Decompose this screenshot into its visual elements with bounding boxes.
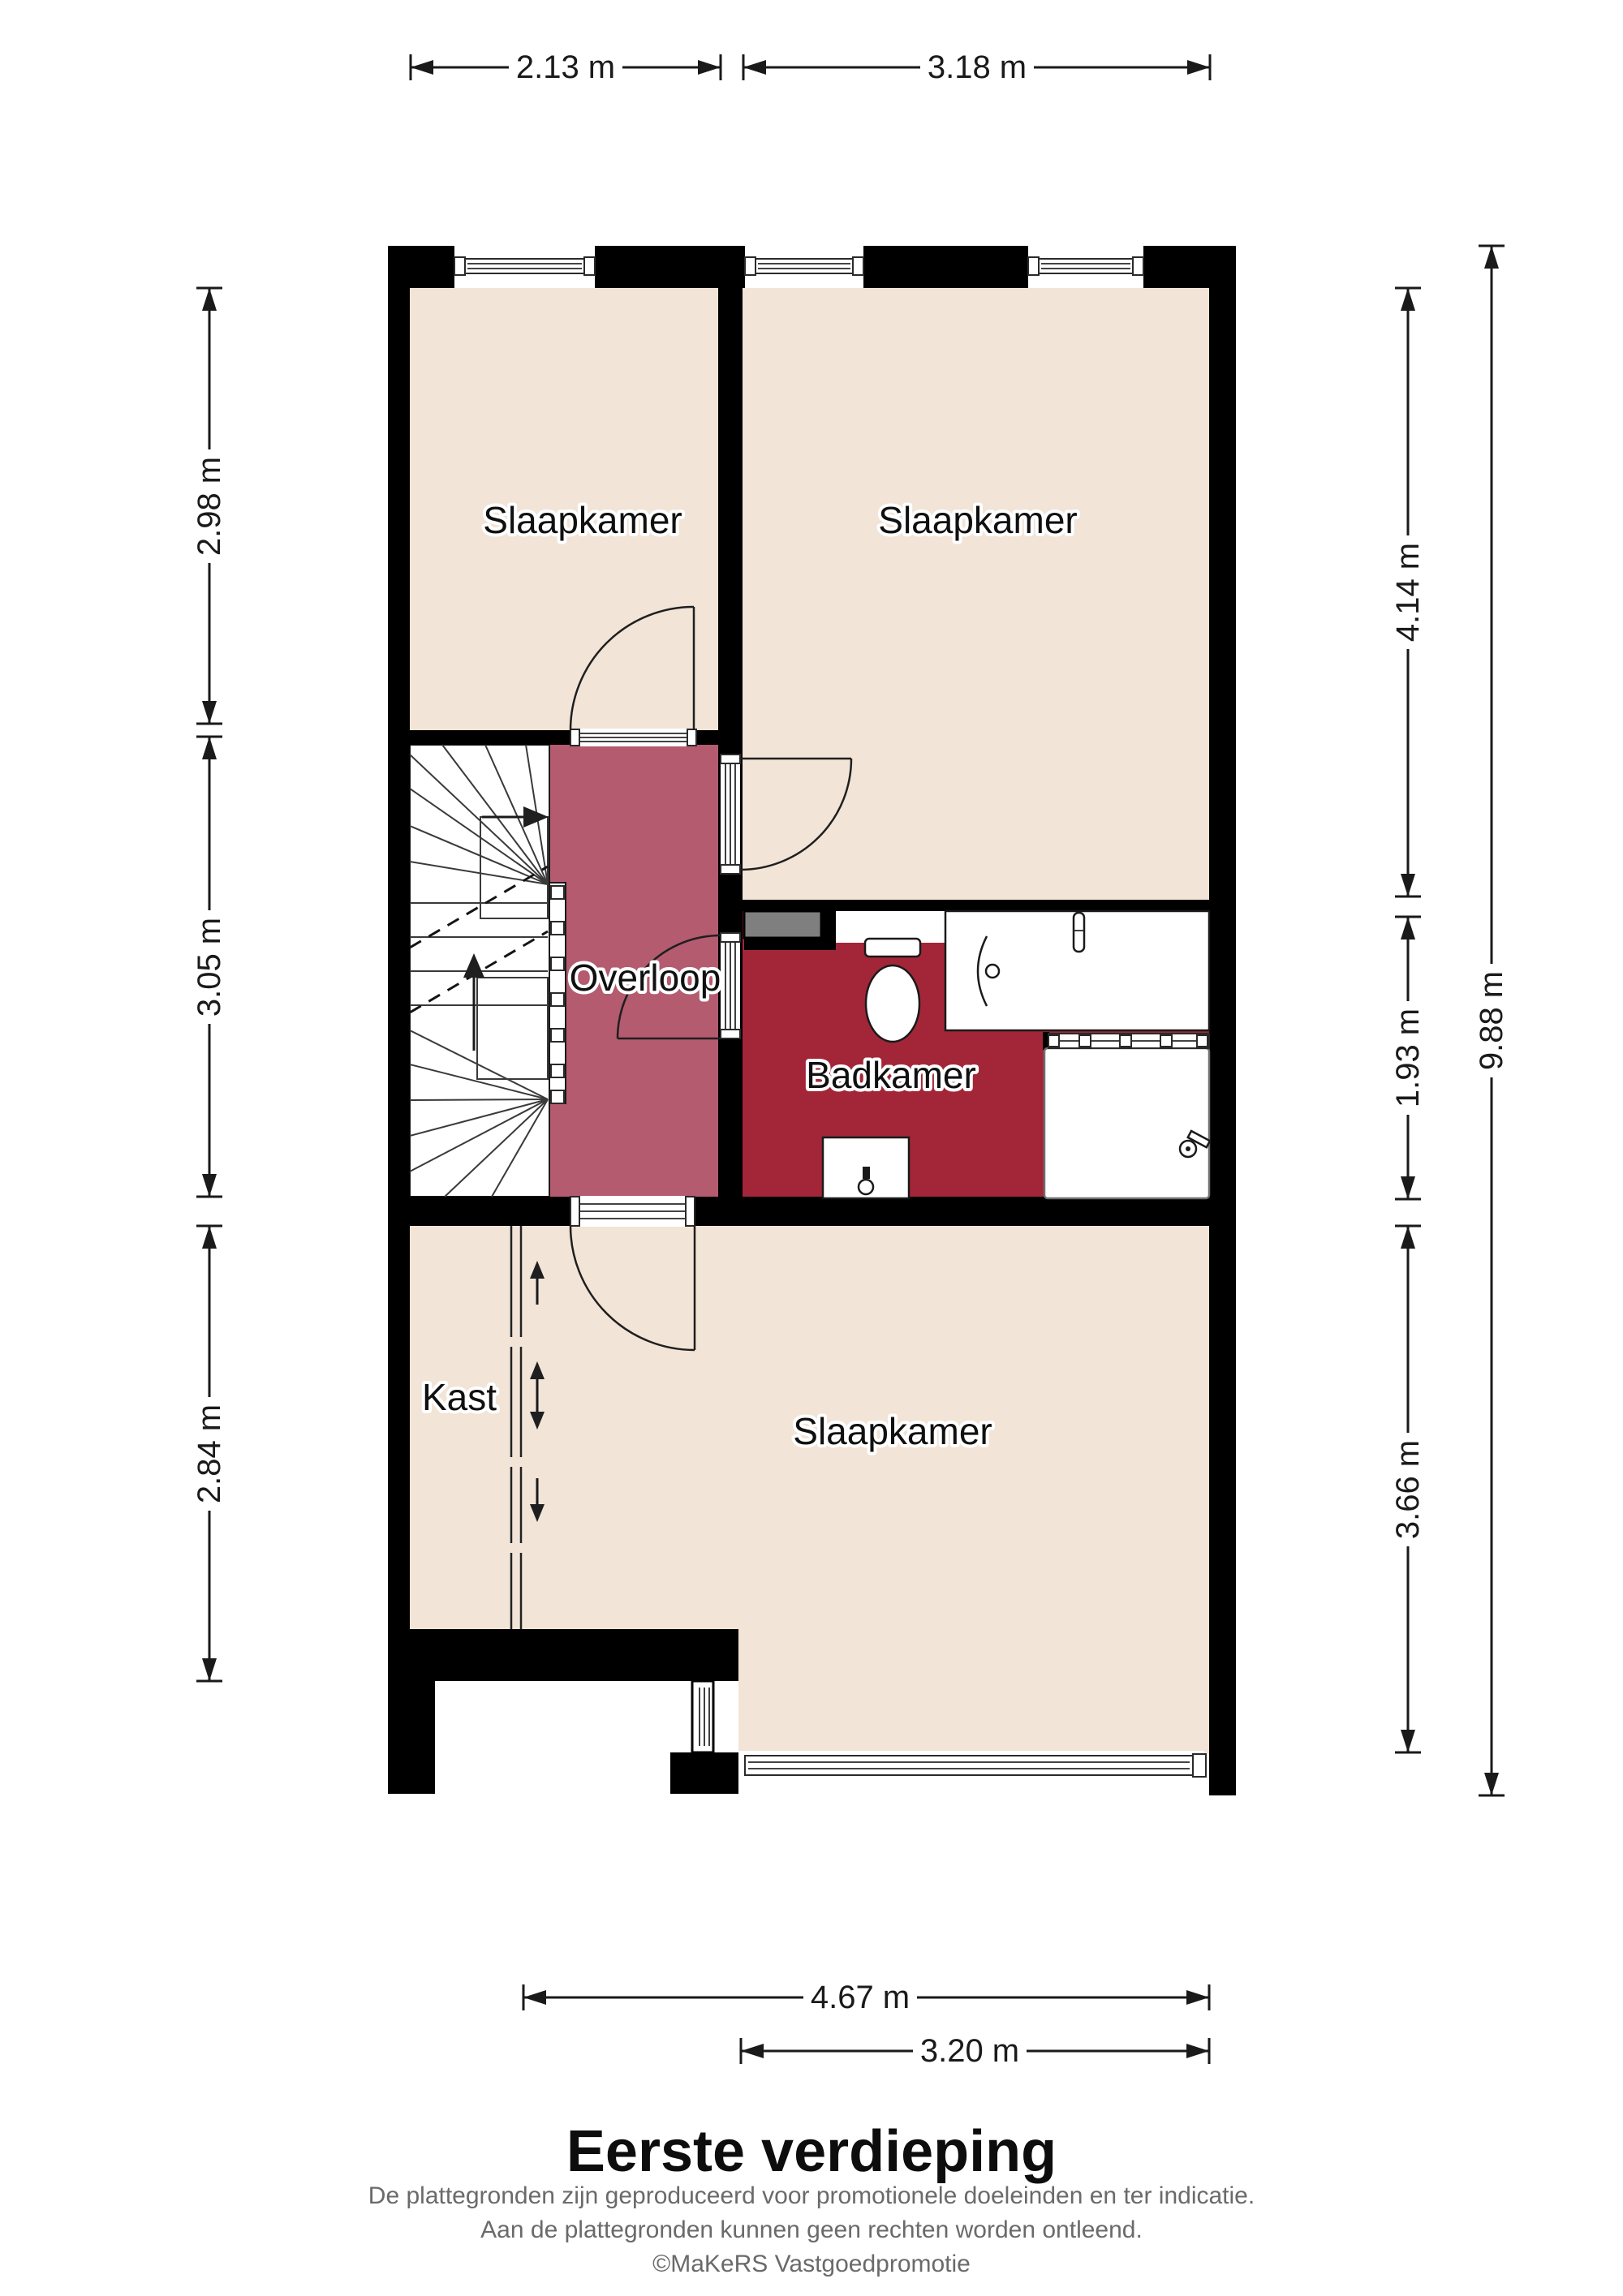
- floor-plan-svg: 2.13 m 3.18 m 2.98 m: [0, 0, 1623, 2296]
- dim-label: 9.88 m: [1474, 971, 1509, 1070]
- room-bedroom-top-right: [743, 288, 1209, 900]
- room-label-bedroom-bottom: Slaapkamer: [793, 1410, 992, 1452]
- shower-icon: [1044, 1034, 1210, 1198]
- floor-plan-page: 2.13 m 3.18 m 2.98 m: [0, 0, 1623, 2296]
- room-label-bedroom-top-right: Slaapkamer: [878, 499, 1077, 541]
- wall-left: [388, 246, 410, 1794]
- dim-label: 2.13 m: [516, 49, 615, 85]
- dim-label: 3.66 m: [1390, 1440, 1426, 1539]
- window-top-2: [745, 246, 863, 288]
- dim-label: 1.93 m: [1390, 1008, 1426, 1107]
- dim-label: 2.84 m: [192, 1404, 227, 1503]
- washer-icon: [823, 1137, 909, 1198]
- dim-label: 4.14 m: [1390, 543, 1426, 642]
- wall-top-seg: [595, 246, 745, 288]
- dim-label: 2.98 m: [192, 457, 227, 556]
- vanity-icon: [945, 911, 1209, 1030]
- room-label-bathroom: Badkamer: [806, 1054, 976, 1096]
- wall-duct-side: [821, 911, 836, 950]
- room-closet: [410, 1226, 521, 1629]
- dim-label: 3.05 m: [192, 918, 227, 1017]
- wall-divider-center: [718, 284, 743, 1201]
- dim-label: 3.18 m: [928, 49, 1027, 85]
- page-title: Eerste verdieping: [566, 2119, 1057, 2184]
- window-top-3: [1028, 246, 1143, 288]
- window-bottom-band: [738, 1751, 1206, 1782]
- wall-closet-bottom: [388, 1629, 738, 1681]
- footer-credit: ©MaKeRS Vastgoedpromotie: [652, 2251, 971, 2277]
- room-label-closet: Kast: [422, 1376, 497, 1418]
- duct-shaft: [744, 911, 821, 938]
- window-top-1: [454, 246, 595, 288]
- window-closet-vertical: [692, 1681, 713, 1752]
- wall-bottom-pier: [670, 1752, 738, 1794]
- wall-top-seg: [863, 246, 1028, 288]
- wall-middle-horizontal: [388, 1197, 1236, 1226]
- dim-label: 3.20 m: [920, 2033, 1019, 2069]
- room-label-landing: Overloop: [570, 957, 721, 999]
- wall-bathroom-top: [743, 900, 1236, 911]
- wall-right: [1209, 246, 1236, 1795]
- wall-bottom-left-column: [388, 1681, 435, 1794]
- footer-line-2: Aan de plattegronden kunnen geen rechten…: [480, 2216, 1143, 2243]
- dim-label: 4.67 m: [811, 1980, 910, 2015]
- toilet-icon: [865, 939, 920, 1042]
- room-label-bedroom-top-left: Slaapkamer: [483, 499, 682, 541]
- stair-balustrade: [549, 883, 566, 1103]
- footer-line-1: De plattegronden zijn geproduceerd voor …: [368, 2182, 1255, 2209]
- windows-top: [454, 246, 1143, 288]
